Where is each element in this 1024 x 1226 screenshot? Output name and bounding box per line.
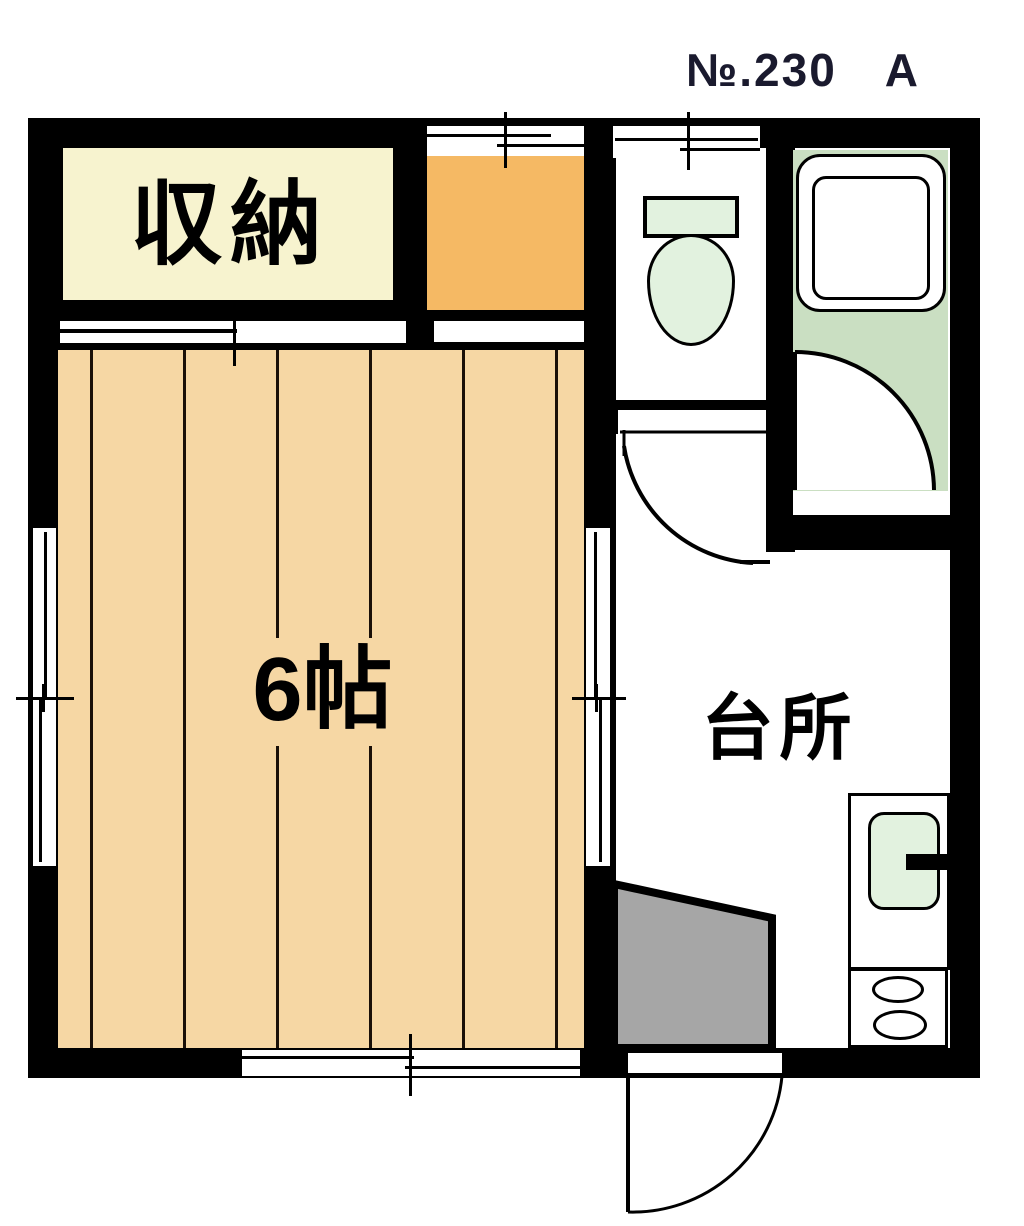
stove-burner-icon xyxy=(873,1010,927,1040)
window-tick xyxy=(233,314,236,366)
storage-orange-wall xyxy=(403,118,427,310)
window-tick xyxy=(16,697,74,700)
sliding-door-panel-line xyxy=(60,329,237,333)
floor-board-line xyxy=(462,350,465,1048)
toilet-tank-icon xyxy=(643,196,739,238)
toilet-bath-wall xyxy=(766,118,795,552)
toilet-door-jamb xyxy=(584,400,618,434)
bathtub-inner-icon xyxy=(812,176,930,300)
main-room-label: 6帖 xyxy=(225,638,420,746)
window-pane-line xyxy=(242,1056,414,1059)
window-pane-line xyxy=(599,700,602,862)
window-tick xyxy=(409,1034,412,1096)
window-pane-line xyxy=(39,700,42,862)
storage-room-label: 収納 xyxy=(85,175,375,275)
window-tick xyxy=(687,112,690,170)
window-tick xyxy=(42,684,45,712)
floor-board-line xyxy=(555,350,558,1048)
orange-room-opening xyxy=(434,321,584,342)
window-tick xyxy=(504,112,507,168)
window-pane-line xyxy=(680,148,760,151)
stove-burner-icon xyxy=(872,976,924,1003)
entrance-door-arc xyxy=(628,1076,782,1212)
window-tick xyxy=(572,697,626,700)
floor-board-line xyxy=(183,350,186,1048)
plan-title: №.230 A xyxy=(686,34,920,100)
kitchen-label: 台所 xyxy=(682,682,877,777)
orange-room xyxy=(427,156,584,310)
faucet-icon xyxy=(906,854,960,870)
window-pane-line xyxy=(497,144,584,147)
window-pane-line xyxy=(594,532,597,700)
floor-board-line xyxy=(90,350,93,1048)
window-pane-line xyxy=(44,532,47,700)
bath-threshold xyxy=(793,491,948,515)
entrance-opening xyxy=(628,1053,782,1073)
bath-bottom-wall xyxy=(766,515,958,550)
window-tick xyxy=(595,684,598,712)
floorplan-canvas: №.230 A 6帖 収納 xyxy=(0,0,1024,1226)
window-pane-line xyxy=(427,134,551,137)
window-pane-line xyxy=(405,1066,580,1069)
